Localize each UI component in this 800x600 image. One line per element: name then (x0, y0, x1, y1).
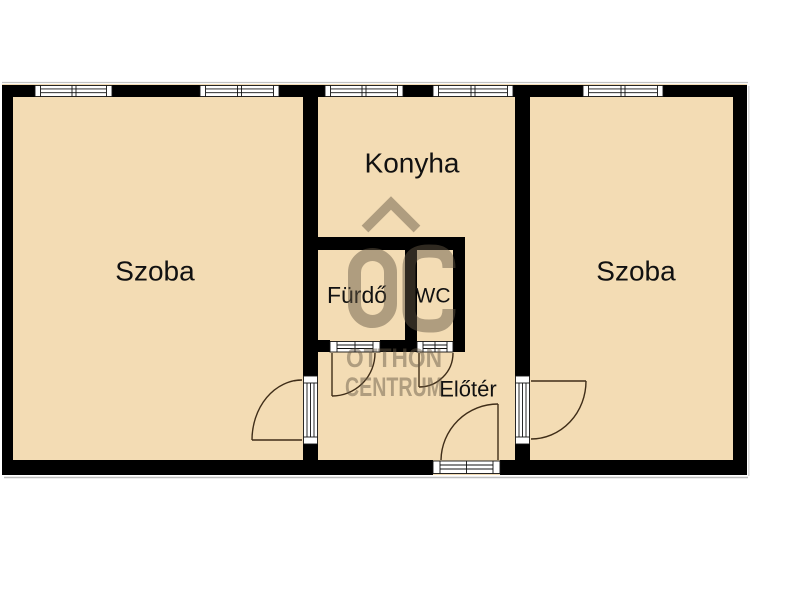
outer-wall-right (733, 85, 747, 475)
outer-wall-top-seg (403, 85, 433, 97)
window-szoba-right (583, 86, 663, 97)
floor-plan: Szoba Konyha Szoba Fürdő WC Előtér OTTHO… (0, 0, 800, 600)
threshold-szoba-left-door (304, 376, 318, 444)
wall-right-szoba (515, 97, 530, 376)
room-label-szoba-right: Szoba (596, 256, 676, 287)
window-konyha-1 (325, 86, 403, 97)
window-szoba-left-1 (35, 86, 112, 97)
window-konyha-2 (433, 86, 513, 97)
outer-wall-top-seg (279, 85, 325, 97)
threshold-szoba-right-door (516, 376, 530, 444)
outer-wall-left (2, 85, 13, 475)
room-label-konyha: Konyha (365, 148, 460, 179)
outer-wall-bottom-seg (2, 460, 433, 475)
outer-wall-top-seg (112, 85, 200, 97)
watermark-line1: OTTHON (346, 343, 442, 373)
threshold-entrance-door (433, 461, 500, 474)
wall-left-szoba (303, 97, 318, 376)
outer-wall-bottom-seg (500, 460, 747, 475)
room-label-szoba-left: Szoba (115, 256, 195, 287)
room-label-eloter: Előtér (439, 377, 496, 402)
wall-left-szoba-stub (303, 444, 318, 460)
wall-bath-bottom-seg (318, 340, 330, 352)
outer-wall-top-seg (513, 85, 583, 97)
window-szoba-left-2 (200, 86, 279, 97)
watermark-line2: CENTRUM (345, 372, 443, 402)
wall-right-szoba-stub (515, 444, 530, 460)
room-label-wc: WC (416, 285, 451, 308)
floor-plan-page: Szoba Konyha Szoba Fürdő WC Előtér OTTHO… (0, 0, 800, 600)
